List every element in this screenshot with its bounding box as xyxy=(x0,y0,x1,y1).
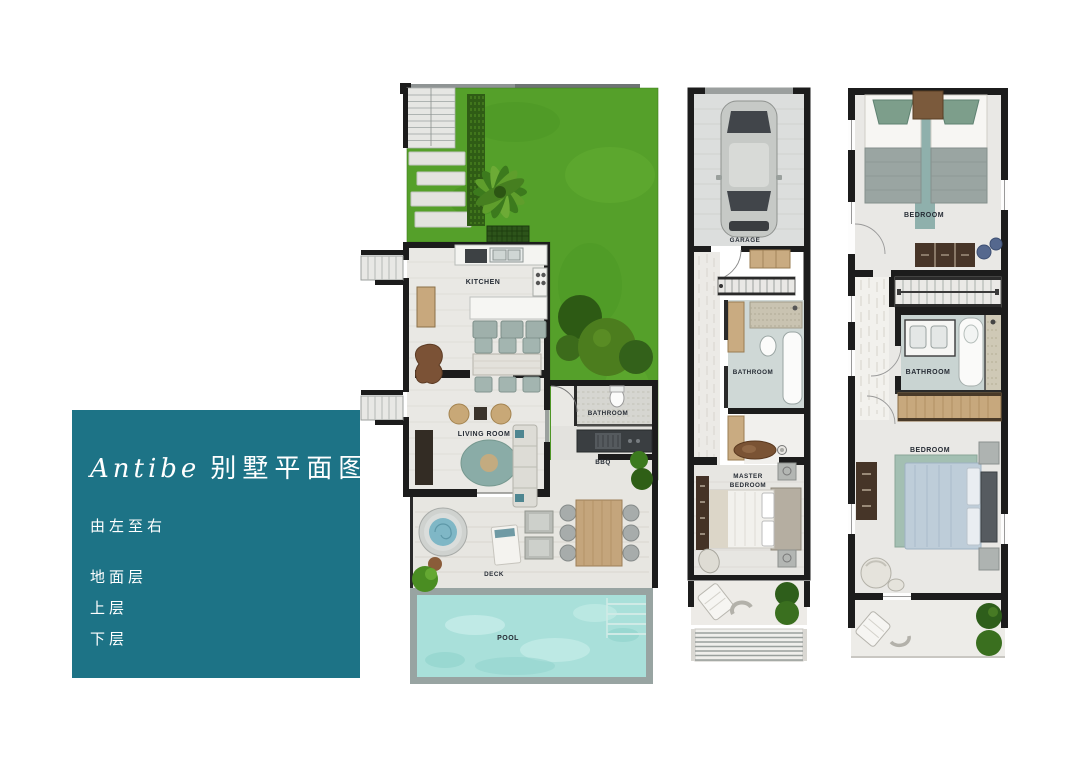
bathroom-vanity xyxy=(905,320,955,356)
toilet xyxy=(760,336,776,356)
closet xyxy=(750,250,790,268)
garage-door xyxy=(705,88,793,95)
ground-floor-plan: KITCHEN LIVING ROOM xyxy=(355,80,665,688)
pouf xyxy=(990,238,1002,250)
lounger-pad xyxy=(529,514,549,530)
shower xyxy=(750,302,802,328)
lower-floor-plan: BEDROOM xyxy=(843,84,1018,669)
wall xyxy=(891,270,1001,277)
coffee-table xyxy=(480,454,498,472)
plant-highlight xyxy=(988,607,998,617)
master-bedroom-label-1: MASTER xyxy=(733,473,763,480)
wall xyxy=(724,300,728,340)
wall xyxy=(855,270,873,277)
outdoor-dining-set xyxy=(560,500,639,566)
toilet xyxy=(964,325,978,343)
armchair xyxy=(449,404,469,424)
nightstand xyxy=(979,548,999,570)
upper-floor-plan: GARAGE BATHROOM xyxy=(683,84,815,669)
bathroom-label: BATHROOM xyxy=(733,369,774,376)
bathtub xyxy=(783,332,802,404)
nightstand xyxy=(778,550,796,567)
balcony-plant xyxy=(976,630,1002,656)
balcony-plant xyxy=(976,603,1002,629)
pool xyxy=(410,588,653,684)
deck-label: DECK xyxy=(484,571,504,578)
stairs xyxy=(895,277,1001,307)
master-bedroom-label-2: BEDROOM xyxy=(730,482,766,489)
armchair xyxy=(491,404,511,424)
page-title: Antibe别墅平面图 xyxy=(90,448,340,485)
tv-cabinet xyxy=(415,430,433,485)
entry-stairs xyxy=(403,88,455,148)
balcony-plant xyxy=(775,601,799,625)
living-room-label: LIVING ROOM xyxy=(458,431,511,438)
planter-trellis xyxy=(487,226,529,242)
wall xyxy=(848,600,855,628)
door-gap xyxy=(848,224,855,254)
balcony-edge xyxy=(851,656,1005,658)
wardrobe xyxy=(898,393,1001,421)
entry-porch-lower xyxy=(361,390,403,425)
wall xyxy=(895,315,901,346)
double-bed xyxy=(905,463,997,549)
garage-label: GARAGE xyxy=(730,237,761,244)
title-latin: Antibe xyxy=(90,454,200,484)
wall xyxy=(895,307,1001,315)
bedroom-top-label: BEDROOM xyxy=(904,212,944,219)
entry-door xyxy=(417,287,435,327)
headboard xyxy=(981,472,997,542)
title-cjk: 别墅平面图 xyxy=(210,453,370,483)
direction-note: 由左至右 xyxy=(90,515,340,536)
dining-set xyxy=(473,338,541,392)
side-table xyxy=(474,407,487,420)
bathroom-label: BATHROOM xyxy=(588,410,629,417)
kitchen-label: KITCHEN xyxy=(466,279,501,286)
bbq-label: BBQ xyxy=(595,459,611,466)
info-panel: Antibe别墅平面图 由左至右 地面层 上层 下层 xyxy=(72,410,360,678)
deck-bush-highlight xyxy=(425,568,437,580)
pool-label: POOL xyxy=(497,635,519,642)
dresser xyxy=(856,462,877,520)
nightstand xyxy=(778,463,796,480)
shower xyxy=(985,315,1001,390)
wall xyxy=(688,581,694,607)
wall xyxy=(1001,600,1008,628)
deck-tree xyxy=(630,451,648,469)
floor-list: 地面层 上层 下层 xyxy=(90,562,340,655)
wall xyxy=(691,457,717,465)
entry-porch-upper xyxy=(361,250,403,285)
floor-plan-poster: Antibe别墅平面图 由左至右 地面层 上层 下层 xyxy=(0,0,1080,764)
driftwood-plant xyxy=(415,344,442,383)
car xyxy=(716,101,782,237)
lounge-mat xyxy=(491,525,521,566)
bedroom-bottom-label: BEDROOM xyxy=(910,447,950,454)
bathroom-closet xyxy=(728,302,744,352)
slatted-deck xyxy=(691,629,807,661)
deck-tree xyxy=(631,468,653,490)
pouf xyxy=(977,245,991,259)
nightstand xyxy=(979,442,999,464)
kitchen-island xyxy=(470,297,547,338)
master-bed xyxy=(710,488,801,550)
passage-floor xyxy=(551,386,577,426)
wall xyxy=(691,246,711,252)
bathroom-label: BATHROOM xyxy=(906,369,951,376)
floor-list-item-upper: 上层 xyxy=(90,593,340,624)
bench xyxy=(913,91,943,119)
hedge xyxy=(467,94,485,226)
lounger-pad xyxy=(529,540,549,556)
wall xyxy=(895,376,901,390)
floor-list-item-ground: 地面层 xyxy=(90,562,340,593)
floor-list-item-lower: 下层 xyxy=(90,624,340,655)
wall xyxy=(889,277,895,307)
wall xyxy=(728,408,804,414)
wall xyxy=(804,581,810,607)
bbq-counter xyxy=(577,430,652,452)
wall xyxy=(724,366,728,408)
stairs xyxy=(718,277,795,295)
dresser xyxy=(696,476,709,550)
